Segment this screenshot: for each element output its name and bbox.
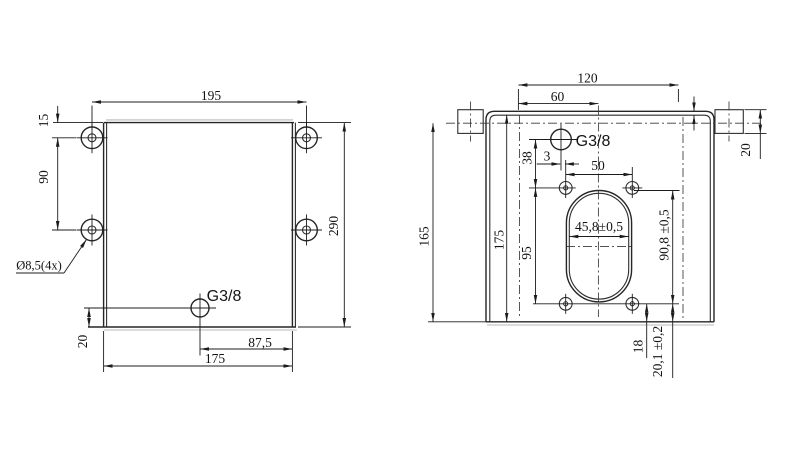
- background: [0, 0, 800, 450]
- dim-text: 290: [326, 216, 341, 237]
- dim-text: 90: [36, 170, 51, 184]
- dim-text: 3: [544, 149, 551, 164]
- dim-text: 20,1 ±0,2: [650, 326, 665, 377]
- side-dim-slot-width: 45,8±0,5: [569, 219, 628, 237]
- dim-text: 87,5: [248, 335, 272, 350]
- technical-drawing: G3/8 195 15 90 290 Ø8,: [0, 0, 800, 450]
- drawing-canvas: G3/8 195 15 90 290 Ø8,: [0, 0, 800, 450]
- dim-text: 90,8 ±0,5: [657, 209, 672, 261]
- dim-text: 175: [205, 351, 226, 366]
- dim-text: 195: [201, 88, 222, 103]
- dim-text: 18: [631, 340, 646, 354]
- dim-text: 120: [577, 70, 598, 85]
- dim-text: 38: [520, 151, 535, 165]
- dim-text: 95: [519, 246, 534, 260]
- dim-text: 50: [591, 158, 605, 173]
- hole-note-text: Ø8,5(4x): [16, 259, 61, 273]
- dim-text: 45,8±0,5: [575, 219, 623, 234]
- dim-text: 20: [738, 143, 753, 157]
- dim-text: 165: [417, 226, 432, 247]
- side-port-label: G3/8: [576, 133, 611, 150]
- dim-text: 60: [551, 89, 565, 104]
- dim-text: 175: [492, 230, 507, 251]
- dim-text: 20: [75, 335, 90, 349]
- dim-text: 15: [36, 114, 51, 128]
- front-port-label: G3/8: [207, 288, 242, 305]
